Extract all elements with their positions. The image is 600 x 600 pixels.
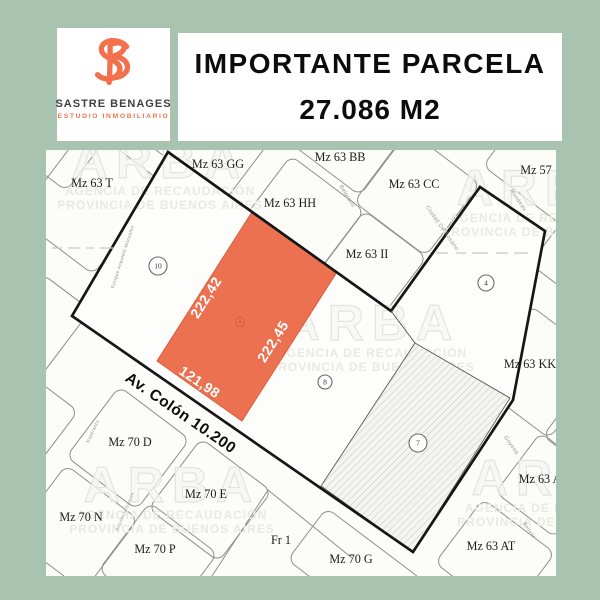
watermark-line1: AGENCIA DE RECAUDACIÓN [465, 500, 556, 515]
watermark-line2: PROVINCIA DE BUENOS AIRES [57, 198, 262, 212]
map-card: ARBAAGENCIA DE RECAUDACIÓNPROVINCIA DE B… [46, 150, 556, 576]
mz-label: Mz 63 AT [467, 539, 516, 553]
mz-label: Mz 63 II [346, 247, 389, 261]
watermark-line2: PROVINCIA DE BUENOS AIRES [457, 515, 556, 529]
mz-label: Mz 63 T [71, 176, 113, 190]
mz-label: Mz 70 E [185, 487, 227, 501]
headline-area: 27.086 M2 [299, 94, 440, 126]
headline-title: IMPORTANTE PARCELA [194, 48, 545, 80]
real-estate-flyer: SASTRE BENAGES ESTUDIO INMOBILIARIO IMPO… [0, 0, 600, 600]
mz-label: Mz 70 D [108, 435, 152, 449]
mz-label: Mz 70 P [134, 542, 176, 556]
mz-label: Mz 70 G [329, 552, 373, 566]
mz-label: Fr 1 [271, 533, 291, 547]
mz-label: Mz 70 N [59, 510, 103, 524]
mz-label: Mz 63 HH [264, 196, 316, 210]
cadastral-map: ARBAAGENCIA DE RECAUDACIÓNPROVINCIA DE B… [46, 150, 556, 576]
parcel-circle-number: 7 [416, 439, 420, 448]
sastre-benages-logo-icon [83, 34, 145, 96]
brand-name: SASTRE BENAGES [55, 98, 171, 110]
logo-card: SASTRE BENAGES ESTUDIO INMOBILIARIO [57, 28, 170, 141]
mz-label: Mz 57 [520, 163, 551, 177]
headline-card: IMPORTANTE PARCELA 27.086 M2 [178, 33, 562, 141]
parcel-circle-number: 4 [484, 279, 488, 288]
brand-tagline: ESTUDIO INMOBILIARIO [58, 113, 170, 120]
mz-label: Mz 63 A [519, 472, 556, 486]
mz-label: Mz 63 BB [315, 150, 366, 164]
watermark-big-text: ARBA [84, 457, 260, 513]
mz-label: Mz 63 KK [504, 357, 556, 371]
watermark-line1: AGENCIA DE RECAUDACIÓN [450, 210, 556, 225]
mz-label: Mz 63 GG [192, 157, 244, 171]
watermark-line2: PROVINCIA DE BUENOS AIRES [69, 522, 274, 536]
parcel-circle-number: 10 [154, 262, 162, 271]
watermark-line1: AGENCIA DE RECAUDACIÓN [77, 507, 267, 522]
parcel-circle-number: 8 [323, 378, 327, 387]
mz-label: Mz 63 CC [389, 177, 440, 191]
